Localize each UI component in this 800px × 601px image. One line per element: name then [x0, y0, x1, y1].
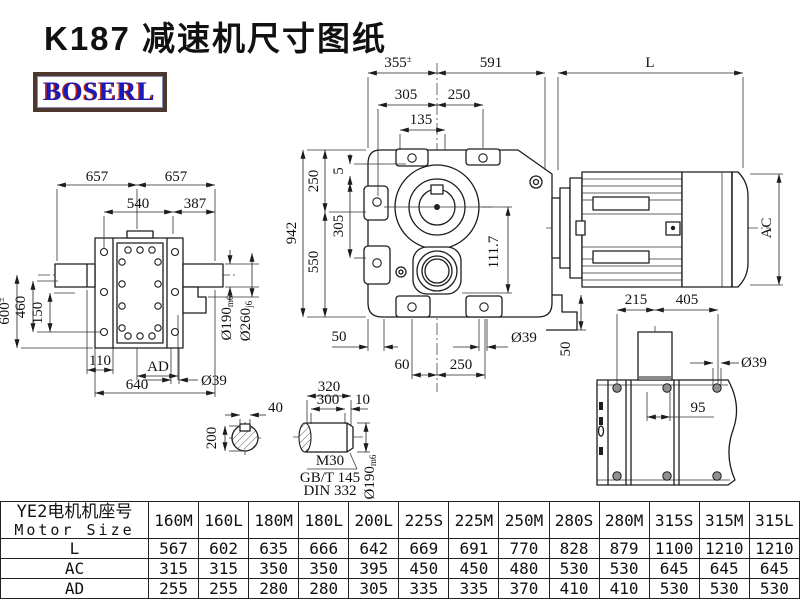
table-cell: 645	[699, 559, 749, 579]
shaft-section-view: 40 200	[204, 400, 283, 455]
dim-label: Ø39	[511, 330, 537, 346]
dim-label: Ø260j6	[238, 300, 254, 341]
motor-size-header-en: Motor Size	[1, 522, 148, 538]
table-cell: 1210	[699, 539, 749, 559]
row-label: AC	[1, 559, 149, 579]
dim-label: Ø190m6	[362, 454, 378, 499]
dim-label: 942	[284, 222, 300, 245]
dim-label: 540	[127, 196, 150, 212]
dim-label: 40	[268, 400, 283, 416]
dim-label: 405	[676, 292, 699, 308]
dim-label: 200	[204, 427, 220, 450]
table-cell: 530	[549, 559, 599, 579]
table-cell: 635	[249, 539, 299, 559]
dim-label: AD	[147, 359, 169, 375]
column-header: 315L	[749, 502, 799, 539]
table-cell: 666	[299, 539, 349, 559]
dim-label: 550	[306, 251, 322, 274]
dim-label: 355±	[384, 54, 412, 71]
dim-label: 305	[331, 215, 347, 238]
dim-label: 150	[30, 302, 46, 325]
table-cell: 315	[199, 559, 249, 579]
shaft-end-view: M30 GB/T 145 DIN 332 320 300 10 Ø190m6	[293, 379, 378, 499]
dim-label: 10	[355, 392, 370, 408]
table-cell: 305	[349, 579, 399, 599]
table-cell: 530	[649, 579, 699, 599]
dim-label: 95	[691, 400, 706, 416]
table-cell: 1100	[649, 539, 699, 559]
table-cell: 691	[449, 539, 499, 559]
dim-label: 657	[86, 169, 109, 185]
dim-label: 657	[165, 169, 188, 185]
dim-label: 135	[410, 112, 433, 128]
table-cell: 255	[199, 579, 249, 599]
table-header-row: YE2电机机座号 Motor Size 160M 160L 180M 180L …	[1, 502, 800, 539]
dim-label: 111.7	[486, 235, 502, 268]
dim-label: 60	[395, 357, 410, 373]
table-cell: 315	[149, 559, 199, 579]
table-row-L: L 567 602 635 666 642 669 691 770 828 87…	[1, 539, 800, 559]
dim-label: 250	[306, 170, 322, 193]
column-header: 200L	[349, 502, 399, 539]
drawing-page: K187 减速机尺寸图纸 BOSERL	[0, 0, 800, 601]
table-cell: 480	[499, 559, 549, 579]
table-row-AC: AC 315 315 350 350 395 450 450 480 530 5…	[1, 559, 800, 579]
dim-label: 305	[395, 87, 418, 103]
table-cell: 879	[599, 539, 649, 559]
dim-label: Ø39	[741, 355, 767, 371]
thread-callout: M30	[316, 453, 344, 469]
table-cell: 602	[199, 539, 249, 559]
column-header: 160M	[149, 502, 199, 539]
table-cell: 280	[249, 579, 299, 599]
row-label: L	[1, 539, 149, 559]
table-cell: 335	[399, 579, 449, 599]
column-header: 180L	[299, 502, 349, 539]
dim-label: Ø39	[201, 373, 227, 389]
table-cell: 410	[549, 579, 599, 599]
table-cell: 669	[399, 539, 449, 559]
dim-label: AC	[759, 218, 775, 239]
dim-label: 110	[89, 353, 111, 369]
table-cell: 530	[599, 559, 649, 579]
base-view: 215 405 95 Ø39	[597, 292, 767, 485]
column-header: 280S	[549, 502, 599, 539]
technical-drawing: 657 657 540 387 600± 460 150 110 AD 640 …	[0, 0, 800, 500]
row-label: AD	[1, 579, 149, 599]
column-header: 250M	[499, 502, 549, 539]
table-cell: 645	[749, 559, 799, 579]
column-header: 280M	[599, 502, 649, 539]
dim-label: 250	[448, 87, 471, 103]
table-cell: 255	[149, 579, 199, 599]
column-header: 180M	[249, 502, 299, 539]
column-header: 225S	[399, 502, 449, 539]
dim-label: 5	[331, 167, 347, 175]
table-cell: 770	[499, 539, 549, 559]
motor-size-header-cell: YE2电机机座号 Motor Size	[1, 502, 149, 539]
table-row-AD: AD 255 255 280 280 305 335 335 370 410 4…	[1, 579, 800, 599]
table-cell: 370	[499, 579, 549, 599]
table-cell: 350	[299, 559, 349, 579]
dim-label: Ø190m6	[219, 295, 235, 340]
motor-size-header-cn: YE2电机机座号	[1, 503, 148, 522]
dim-label: 50	[558, 342, 574, 357]
left-view: 657 657 540 387 600± 460 150 110 AD 640 …	[0, 169, 259, 397]
table-cell: 1210	[749, 539, 799, 559]
table-cell: 280	[299, 579, 349, 599]
dim-label: 600±	[0, 297, 13, 325]
dim-label: 460	[13, 296, 29, 319]
table-cell: 395	[349, 559, 399, 579]
standard-callout: DIN 332	[304, 483, 357, 499]
table-cell: 335	[449, 579, 499, 599]
dim-label: L	[645, 55, 654, 71]
table-cell: 350	[249, 559, 299, 579]
dim-label: 591	[480, 55, 503, 71]
dim-label: 50	[332, 329, 347, 345]
table-cell: 828	[549, 539, 599, 559]
table-cell: 530	[749, 579, 799, 599]
motor-view: AC	[546, 172, 783, 287]
dim-label: 300	[317, 392, 340, 408]
dim-label: 387	[184, 196, 207, 212]
column-header: 315S	[649, 502, 699, 539]
column-header: 315M	[699, 502, 749, 539]
table-cell: 530	[699, 579, 749, 599]
column-header: 160L	[199, 502, 249, 539]
table-cell: 567	[149, 539, 199, 559]
table-cell: 645	[649, 559, 699, 579]
dim-label: 215	[625, 292, 648, 308]
dim-label: 250	[450, 357, 473, 373]
column-header: 225M	[449, 502, 499, 539]
table-cell: 450	[449, 559, 499, 579]
table-cell: 642	[349, 539, 399, 559]
dim-label: 640	[126, 377, 149, 393]
table-cell: 410	[599, 579, 649, 599]
motor-size-table: YE2电机机座号 Motor Size 160M 160L 180M 180L …	[0, 501, 800, 599]
table-cell: 450	[399, 559, 449, 579]
